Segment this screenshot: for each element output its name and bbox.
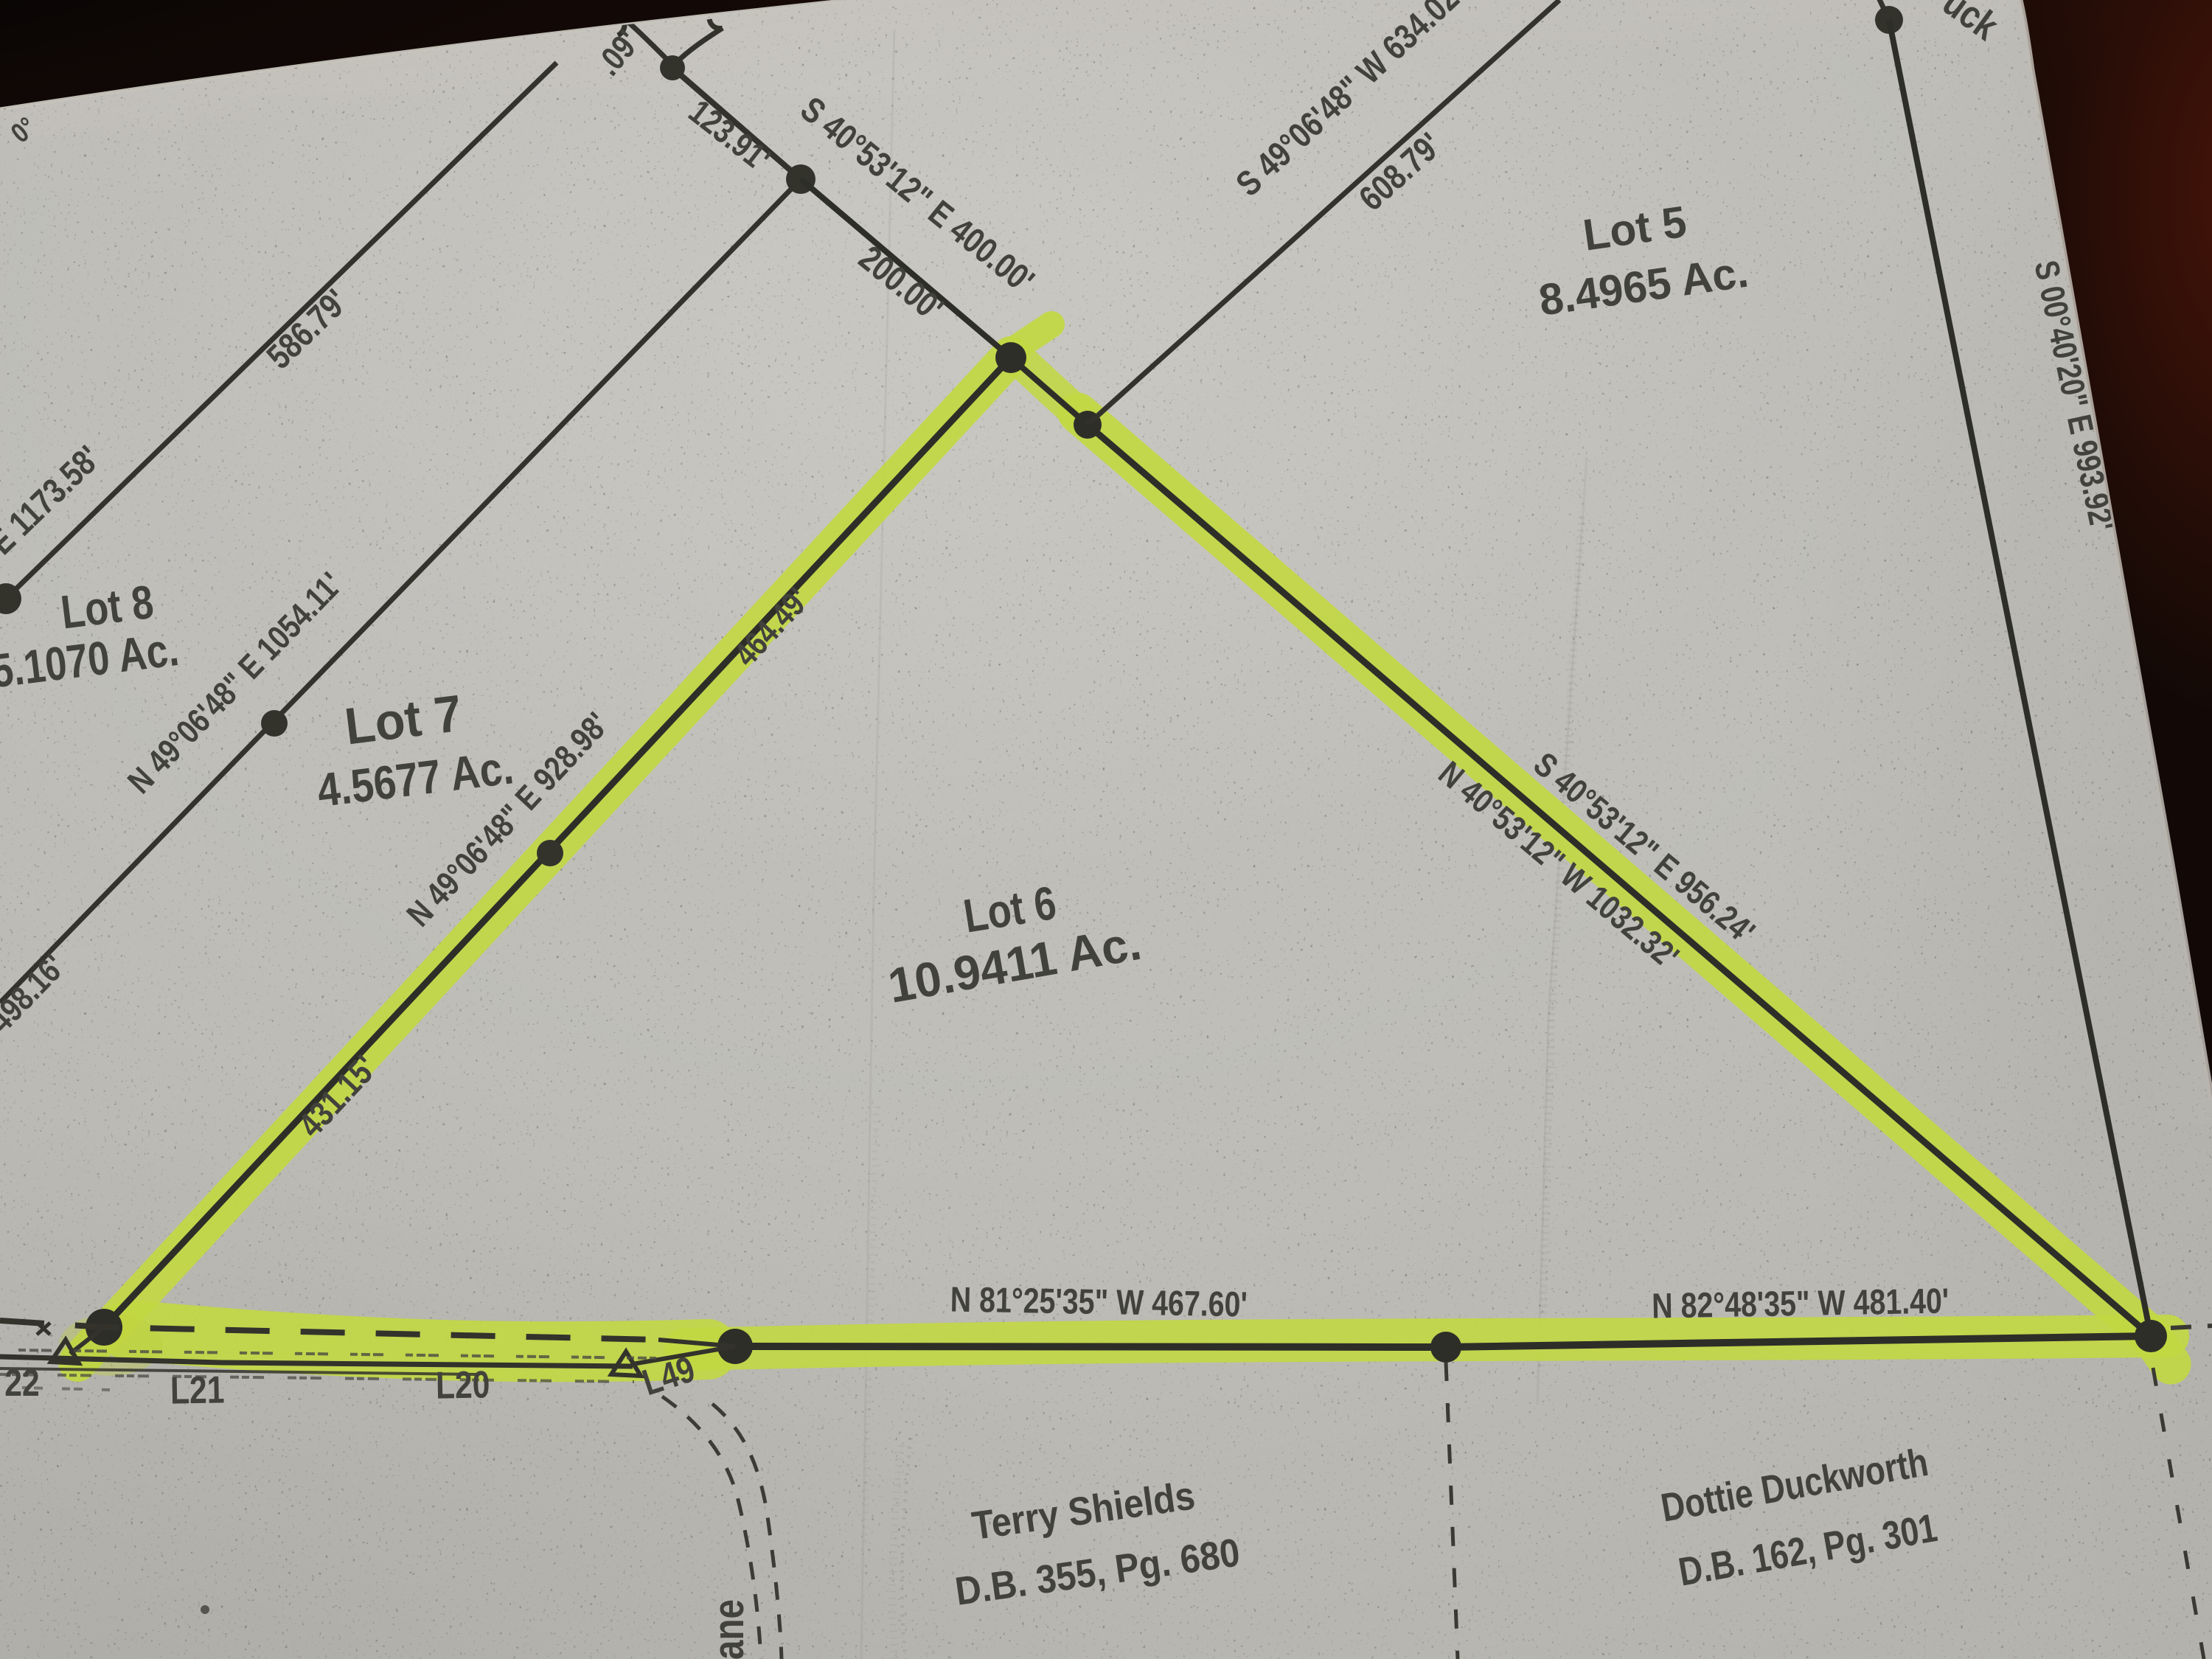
svg-text:22: 22 [4,1362,39,1405]
svg-text:ane: ane [706,1599,754,1659]
svg-text:L20: L20 [435,1363,490,1407]
svg-text:N 81°25'35" W 467.60': N 81°25'35" W 467.60' [950,1280,1248,1325]
svg-text:N 82°48'35" W 481.40': N 82°48'35" W 481.40' [1652,1281,1950,1326]
svg-text:L21: L21 [170,1368,224,1412]
